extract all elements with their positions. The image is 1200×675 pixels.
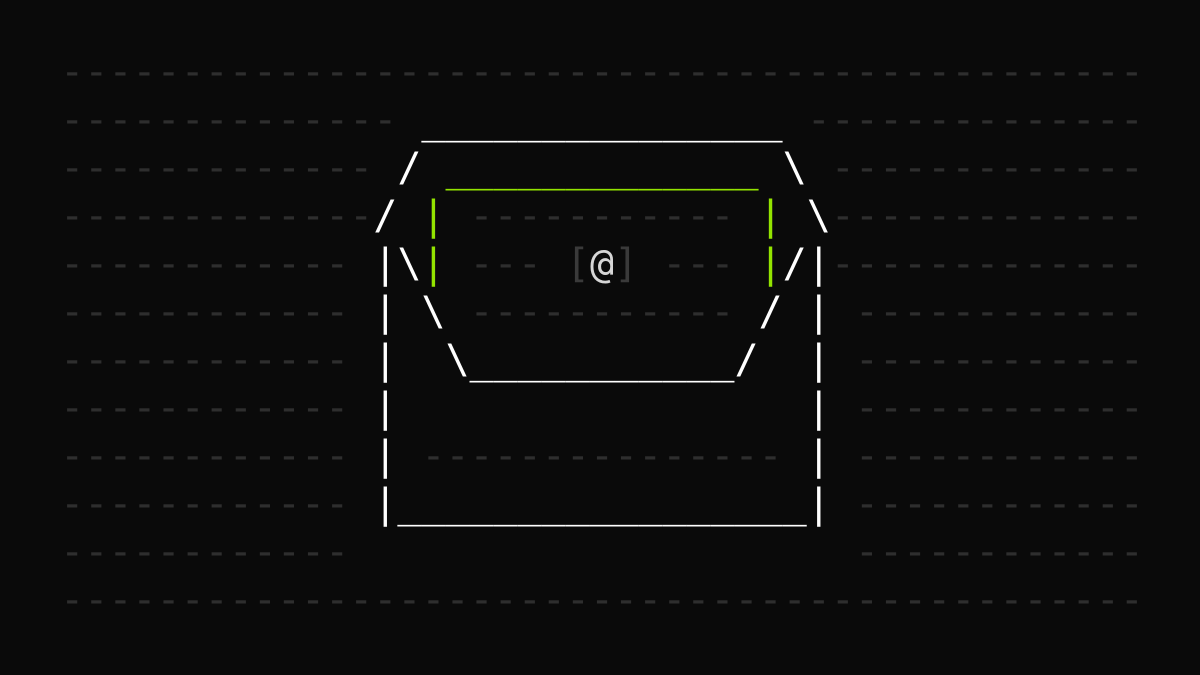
ascii-envelope-illustration: ----------------------------------------… [0,0,1200,675]
email-at-icon: @ [12,0,614,624]
